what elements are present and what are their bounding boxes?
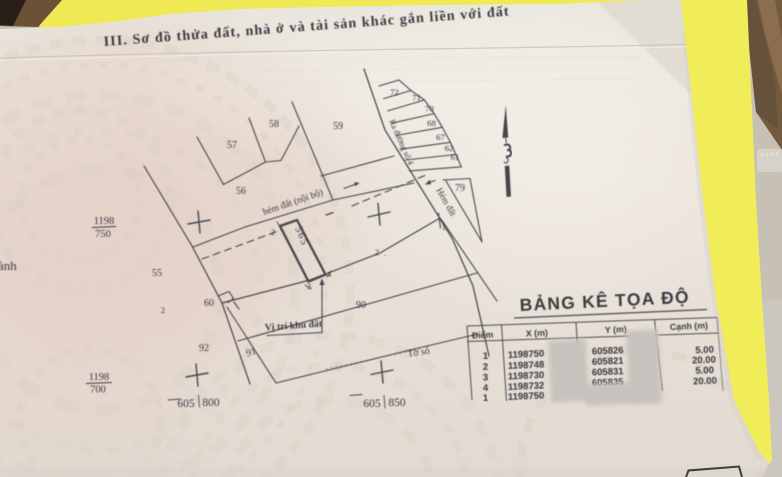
svg-text:55: 55 xyxy=(152,268,162,279)
svg-text:2: 2 xyxy=(375,247,379,257)
svg-text:.: . xyxy=(384,248,386,258)
svg-text:2: 2 xyxy=(271,227,275,237)
svg-text:72: 72 xyxy=(390,87,399,97)
svg-text:57: 57 xyxy=(227,140,237,151)
svg-text:60: 60 xyxy=(204,298,214,309)
svg-text:90: 90 xyxy=(356,300,366,311)
svg-text:59: 59 xyxy=(333,121,343,132)
svg-text:61: 61 xyxy=(451,152,460,162)
svg-text:92: 92 xyxy=(199,343,209,354)
svg-text:750: 750 xyxy=(95,229,111,240)
svg-text:68: 68 xyxy=(427,118,436,128)
svg-text:70: 70 xyxy=(425,104,434,114)
svg-text:71: 71 xyxy=(412,93,421,103)
svg-text:3: 3 xyxy=(307,281,311,291)
svg-text:605: 605 xyxy=(363,398,381,410)
svg-text:2: 2 xyxy=(161,305,165,315)
svg-text:79: 79 xyxy=(455,183,465,194)
svg-text:58: 58 xyxy=(269,119,279,130)
svg-text:20.00: 20.00 xyxy=(693,376,717,388)
svg-text:850: 850 xyxy=(388,397,406,409)
svg-text:56: 56 xyxy=(236,186,246,197)
svg-text:1198: 1198 xyxy=(94,216,115,227)
svg-text:700: 700 xyxy=(90,385,106,396)
svg-text:X (m): X (m) xyxy=(526,328,548,339)
svg-text:605: 605 xyxy=(177,398,195,410)
svg-text:1198: 1198 xyxy=(89,372,110,383)
svg-text:1198750: 1198750 xyxy=(508,390,545,403)
svg-text:67: 67 xyxy=(436,132,445,142)
svg-text:1: 1 xyxy=(442,222,446,232)
svg-text:Cạnh (m): Cạnh (m) xyxy=(670,320,709,332)
svg-text:ành: ành xyxy=(0,258,17,273)
svg-text:800: 800 xyxy=(202,397,220,409)
svg-text:Điểm: Điểm xyxy=(472,330,494,341)
svg-text:Y (m): Y (m) xyxy=(605,324,627,335)
